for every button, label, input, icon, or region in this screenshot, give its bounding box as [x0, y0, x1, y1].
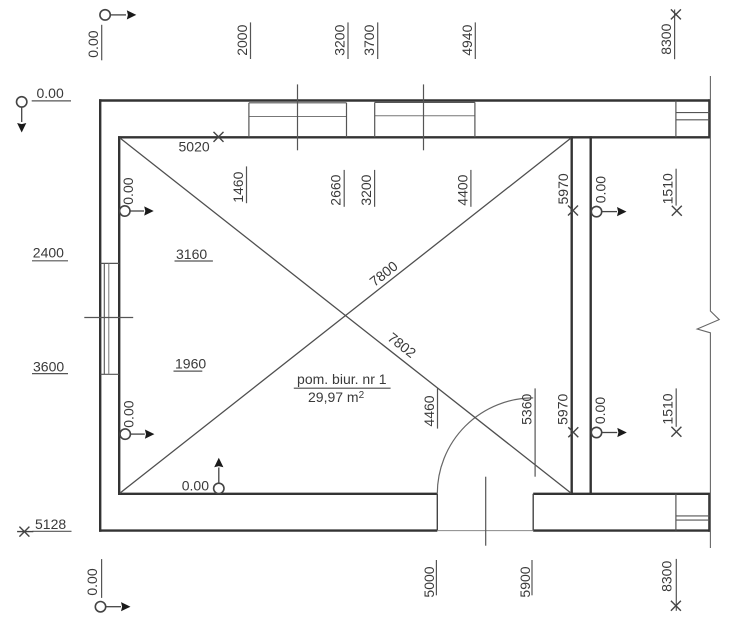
svg-text:pom. biur. nr 1: pom. biur. nr 1	[297, 371, 387, 387]
svg-text:5900: 5900	[517, 566, 533, 597]
svg-text:5020: 5020	[179, 138, 210, 154]
svg-text:3200: 3200	[332, 24, 348, 55]
svg-text:5360: 5360	[519, 394, 535, 425]
svg-text:1510: 1510	[660, 173, 676, 204]
svg-text:0.00: 0.00	[182, 477, 209, 493]
svg-text:1510: 1510	[660, 393, 676, 424]
svg-text:5970: 5970	[555, 173, 571, 204]
svg-text:8300: 8300	[658, 23, 674, 54]
svg-text:0.00: 0.00	[120, 177, 136, 204]
svg-text:4940: 4940	[459, 24, 475, 55]
svg-text:3200: 3200	[358, 174, 374, 205]
svg-text:4400: 4400	[454, 174, 470, 205]
svg-text:5000: 5000	[421, 566, 437, 597]
svg-text:5128: 5128	[35, 516, 66, 532]
svg-text:0.00: 0.00	[37, 85, 64, 101]
svg-text:0.00: 0.00	[84, 568, 100, 595]
svg-text:3160: 3160	[176, 246, 207, 262]
svg-text:0.00: 0.00	[592, 176, 608, 203]
svg-text:2000: 2000	[234, 24, 250, 55]
svg-text:2400: 2400	[33, 244, 64, 260]
svg-text:1460: 1460	[230, 171, 246, 202]
svg-text:3700: 3700	[361, 24, 377, 55]
svg-text:0.00: 0.00	[85, 30, 101, 57]
svg-text:2660: 2660	[328, 174, 344, 205]
svg-text:29,97 m2: 29,97 m2	[308, 389, 365, 405]
svg-text:1960: 1960	[175, 355, 206, 371]
svg-text:4460: 4460	[421, 395, 437, 426]
svg-text:0.00: 0.00	[121, 400, 137, 427]
svg-text:8300: 8300	[659, 561, 675, 592]
svg-text:3600: 3600	[33, 358, 64, 374]
svg-text:5970: 5970	[555, 394, 571, 425]
svg-text:0.00: 0.00	[592, 397, 608, 424]
